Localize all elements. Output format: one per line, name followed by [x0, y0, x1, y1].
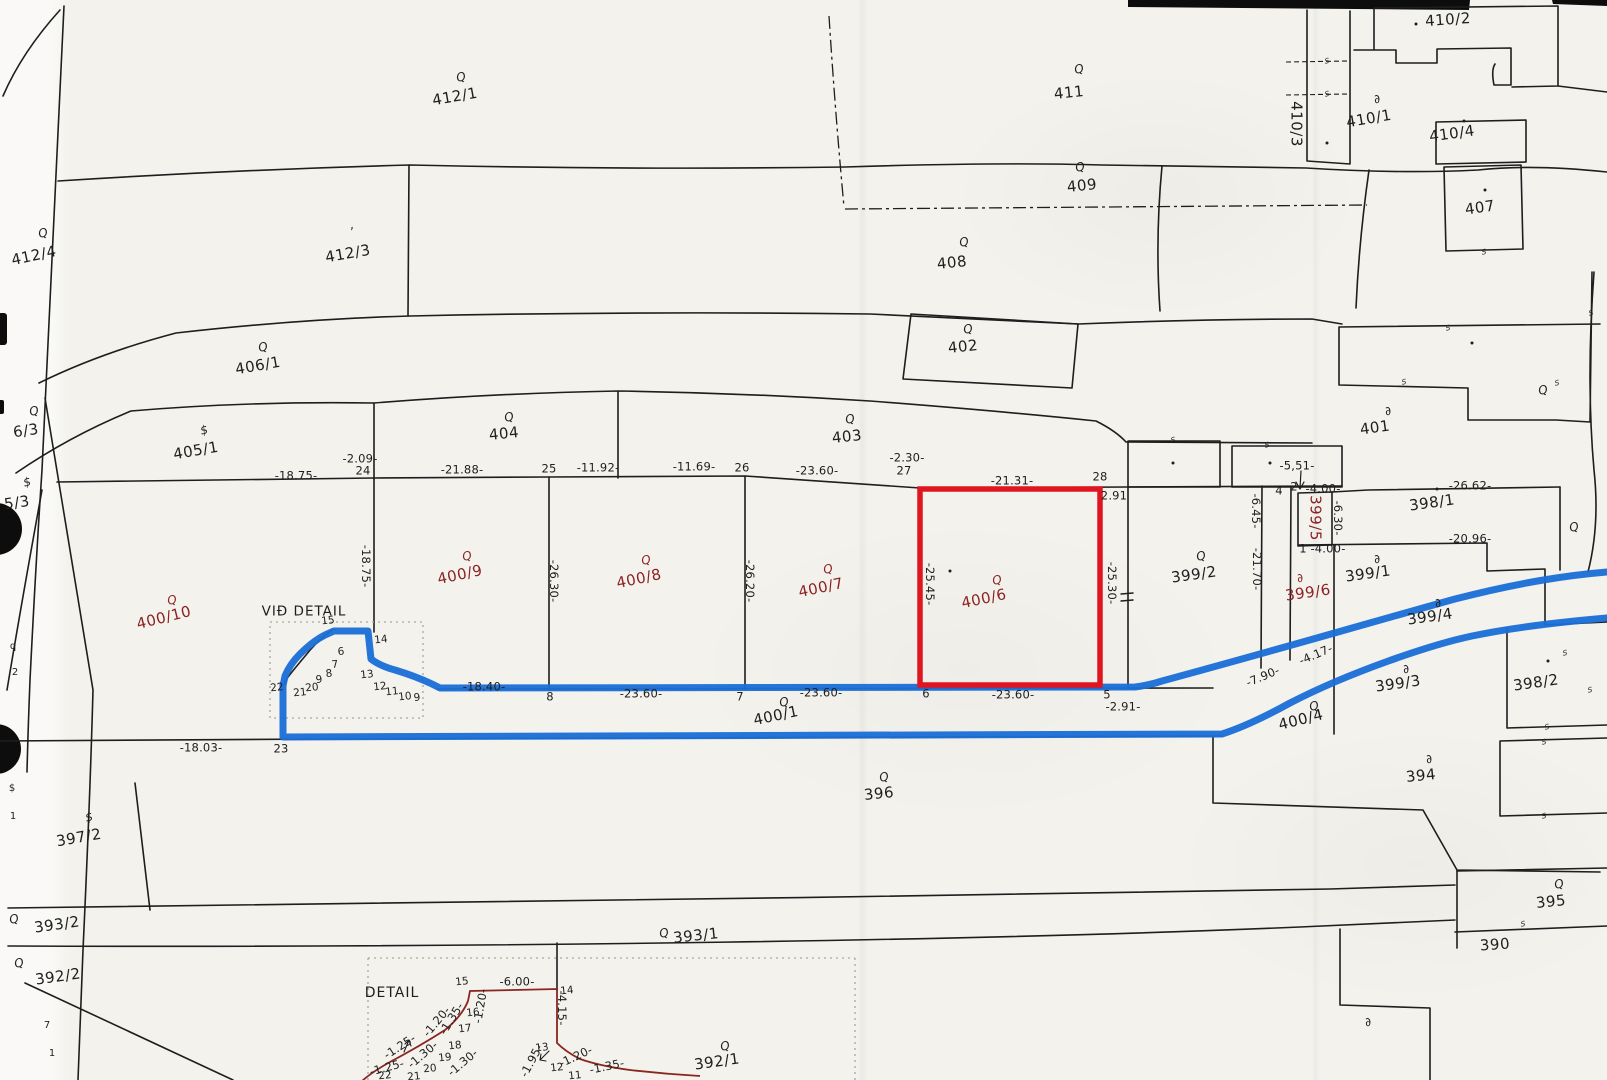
parcel-label: 398/2 [1512, 672, 1559, 693]
landuse-q-icon: Q [991, 573, 1003, 587]
measurement-label: -18.75- [275, 470, 318, 482]
edge-fragment-label: $ [9, 784, 15, 794]
landuse-q-icon: Q [503, 410, 515, 424]
landuse-q-icon: Q [1553, 877, 1565, 891]
landuse-q-icon: Q [461, 549, 473, 563]
parcel-label: 399/5 [1308, 495, 1323, 541]
point-number-label: 13 [360, 669, 374, 681]
point-number-label: 22 [270, 682, 284, 694]
measurement-label: -23.60- [800, 687, 843, 699]
point-dot-icon [1547, 660, 1550, 663]
landuse-d-icon: ∂ [1295, 571, 1304, 584]
survey-mark-icon: s [1520, 919, 1527, 929]
parcel-label: 399/2 [1170, 564, 1217, 585]
point-number-label: 11 [568, 1070, 582, 1080]
landuse-q-icon: Q [37, 226, 49, 240]
measurement-label: -4.00- [1305, 483, 1340, 495]
landuse-q-icon: Q [719, 1039, 731, 1053]
parcel-label: 393/2 [33, 914, 80, 935]
landuse-q-icon: Q [844, 412, 856, 426]
point-number-label: 15 [321, 615, 335, 627]
point-dot-icon [1269, 462, 1272, 465]
survey-mark-icon: s [1445, 323, 1452, 333]
survey-mark-icon: s [1264, 440, 1271, 450]
point-number-label: 20 [305, 682, 319, 694]
measurement-label: -18.40- [463, 681, 506, 693]
measurement-label: -4.17- [1298, 643, 1335, 667]
survey-mark-icon: s [1541, 737, 1548, 747]
point-dot-icon [1463, 120, 1466, 123]
measurement-label: -2.91- [1105, 701, 1140, 713]
landuse-q-icon: Q [257, 340, 269, 354]
landuse-q-icon: Q [1537, 383, 1549, 397]
parcel-label: 5/3 [3, 494, 30, 512]
parcel-label: 400/9 [436, 563, 484, 587]
parcel-label: 404 [488, 425, 520, 443]
parcel-label: 408 [936, 254, 968, 272]
point-number-label: 22 [378, 1070, 392, 1080]
parcel-label: 402 [947, 338, 979, 356]
landuse-d-icon: ∂ [1424, 752, 1433, 765]
measurement-label: 7 [736, 691, 744, 703]
landuse-q-icon: Q [1073, 62, 1085, 76]
landuse-q-icon: Q [822, 562, 834, 576]
parcel-label: 411 [1053, 84, 1085, 102]
measurement-label: -1.35- [589, 1058, 626, 1077]
parcel-label: 410/4 [1428, 123, 1475, 144]
parcel-label: 394 [1405, 767, 1437, 785]
landuse-q-icon: Q [878, 770, 890, 784]
landuse-s-icon: $ [199, 423, 209, 437]
measurement-label: -25.30- [1105, 562, 1117, 605]
measurement-label: -26.20- [743, 560, 755, 603]
point-number-label: 8 [325, 668, 333, 679]
measurement-label: -5,51- [1279, 460, 1314, 472]
measurement-label: 28 [1092, 471, 1107, 483]
survey-mark-icon: s [1170, 435, 1177, 445]
measurement-label: 23 [273, 743, 288, 755]
landuse-q-icon: Q [1308, 699, 1320, 713]
measurement-label: -4.00- [1310, 543, 1345, 555]
measurement-label: -23.60- [620, 688, 663, 700]
point-number-label: 17 [458, 1023, 472, 1035]
measurement-label: -2.30- [889, 452, 924, 464]
point-number-label: 21 [407, 1071, 421, 1080]
cadastral-map: VIÐ DETAIL DETAIL 412/1Q412/4Q412/3’406/… [0, 0, 1607, 1080]
measurement-label: -11.92- [577, 462, 620, 474]
landuse-d-icon: ∂ [1363, 1015, 1372, 1028]
measurement-label: -23.60- [992, 689, 1035, 701]
survey-mark-icon: s [1588, 308, 1595, 318]
survey-mark-icon: s [1544, 722, 1551, 732]
landuse-q-icon: Q [1568, 520, 1580, 534]
parcel-label: 412/3 [324, 243, 372, 266]
parcel-label: 400/8 [615, 567, 663, 591]
tick-icon: ’ [349, 226, 356, 239]
landuse-q-icon: Q [1074, 160, 1086, 174]
point-number-label: 9 [413, 692, 421, 703]
parcel-label: 409 [1066, 177, 1098, 195]
parcel-label: 392/1 [693, 1051, 740, 1072]
point-number-label: 13 [535, 1042, 549, 1054]
measurement-label: 25 [541, 463, 556, 475]
survey-mark-icon: s [1554, 378, 1561, 388]
survey-mark-icon: s [1541, 811, 1548, 821]
point-dot-icon [1415, 23, 1418, 26]
parcel-label: 400/6 [960, 587, 1008, 611]
measurement-label: -21.31- [991, 475, 1034, 487]
measurement-label: -18.75- [359, 545, 371, 588]
point-dot-icon [1326, 142, 1329, 145]
edge-fragment-label: 1 [10, 812, 16, 822]
landuse-q-icon: Q [962, 322, 974, 336]
edge-fragment-label: q [10, 642, 16, 652]
measurement-label: -18.03- [180, 742, 223, 754]
parcel-label: 392/2 [34, 966, 81, 987]
parcel-label: 407 [1464, 198, 1496, 217]
parcel-label: 399/4 [1406, 606, 1453, 627]
landuse-q-icon: Q [658, 926, 670, 940]
survey-mark-icon: s [1562, 648, 1569, 658]
measurement-label: 2.91 [1101, 490, 1127, 502]
edge-fragment-label: 1 [49, 1049, 55, 1059]
landuse-q-icon: Q [166, 593, 178, 607]
parcel-label: 410/3 [1289, 101, 1304, 147]
measurement-label: -21.88- [441, 464, 484, 476]
point-number-label: 14 [560, 985, 574, 997]
measurement-label: -6.45- [1249, 493, 1261, 528]
parcel-label: 390 [1479, 936, 1510, 953]
parcel-label: 410/1 [1345, 108, 1393, 131]
parcel-label: 405/1 [172, 440, 220, 463]
parcel-label: 400/7 [797, 576, 845, 600]
parcel-label: 395 [1535, 893, 1567, 911]
parcel-label: 399/3 [1374, 673, 1421, 694]
point-number-label: 12 [550, 1062, 564, 1074]
edge-fragment-label: 7 [44, 1021, 50, 1031]
parcel-label: 410/2 [1425, 11, 1472, 29]
parcel-label: 400/1 [752, 704, 800, 728]
point-number-label: 10 [398, 691, 412, 703]
point-number-label: 7 [331, 659, 339, 670]
landuse-d-icon: ∂ [1372, 92, 1381, 105]
measurement-label: 6 [922, 688, 930, 700]
point-number-label: 14 [374, 634, 388, 646]
parcel-label: 398/1 [1408, 492, 1455, 513]
point-number-label: 15 [455, 976, 469, 988]
measurement-label: -26.30- [547, 560, 559, 603]
landuse-q-icon: Q [13, 956, 25, 970]
measurement-label: -11.69- [673, 461, 716, 473]
parcel-label: 397/2 [55, 827, 103, 850]
landuse-q-icon: Q [28, 404, 40, 418]
measurement-label: -26.62- [1449, 480, 1492, 492]
point-number-label: 6 [337, 646, 345, 657]
measurement-label: 4 [1275, 485, 1283, 497]
point-dot-icon [1436, 488, 1439, 491]
landuse-q-icon: Q [640, 553, 652, 567]
parcel-label: 399/1 [1344, 563, 1391, 584]
measurement-label: 1 [1299, 543, 1307, 555]
measurement-label: 8 [546, 691, 554, 703]
measurement-label: -6.00- [499, 976, 534, 988]
parcel-label: 399/6 [1284, 582, 1331, 603]
survey-mark-icon: s [1401, 377, 1408, 387]
point-number-label: 19 [438, 1052, 452, 1064]
parcel-label: 412/4 [10, 244, 58, 268]
parcel-label: 393/1 [672, 926, 719, 946]
point-number-label: 16 [466, 1007, 480, 1019]
parcel-label: 396 [863, 785, 895, 803]
parcel-label: 400/10 [135, 604, 193, 632]
point-dot-icon [1471, 342, 1474, 345]
measurement-label: 26 [734, 462, 749, 474]
measurement-label: -6.30- [1331, 500, 1343, 535]
measurement-label: -25.45- [923, 563, 935, 606]
point-dot-icon [949, 570, 952, 573]
landuse-q-icon: Q [455, 70, 467, 84]
label-layer: VIÐ DETAIL DETAIL 412/1Q412/4Q412/3’406/… [0, 0, 1607, 1080]
parcel-label: 403 [831, 428, 863, 446]
measurement-label: 27 [896, 465, 911, 477]
measurement-label: 24 [355, 465, 370, 477]
landuse-d-icon: ∂ [1383, 404, 1392, 417]
landuse-s-icon: $ [22, 475, 32, 489]
detail-label: DETAIL [365, 986, 420, 1000]
measurement-label: -21.70- [1250, 548, 1262, 591]
point-dot-icon [1484, 189, 1487, 192]
survey-mark-icon: s [1587, 685, 1594, 695]
landuse-s-icon: $ [84, 810, 94, 824]
measurement-label: -7.90- [1245, 665, 1282, 689]
landuse-q-icon: Q [8, 912, 20, 926]
survey-mark-icon: s [1324, 89, 1331, 99]
landuse-q-icon: Q [958, 235, 970, 249]
parcel-label: 412/1 [431, 86, 479, 109]
measurement-label: 2 [1290, 481, 1298, 493]
parcel-label: 6/3 [12, 422, 39, 440]
parcel-label: 401 [1359, 418, 1391, 437]
point-number-label: 21 [293, 687, 307, 699]
parcel-label: 406/1 [234, 355, 282, 378]
point-number-label: 20 [423, 1063, 437, 1075]
measurement-label: -20.96- [1449, 533, 1492, 545]
measurement-label: -23.60- [796, 465, 839, 477]
landuse-q-icon: Q [1195, 549, 1207, 563]
landuse-q-icon: Q [778, 695, 790, 709]
survey-mark-icon: s [1481, 247, 1488, 257]
survey-mark-icon: s [1324, 56, 1331, 66]
point-dot-icon [1172, 462, 1175, 465]
edge-fragment-label: 2 [12, 668, 18, 678]
